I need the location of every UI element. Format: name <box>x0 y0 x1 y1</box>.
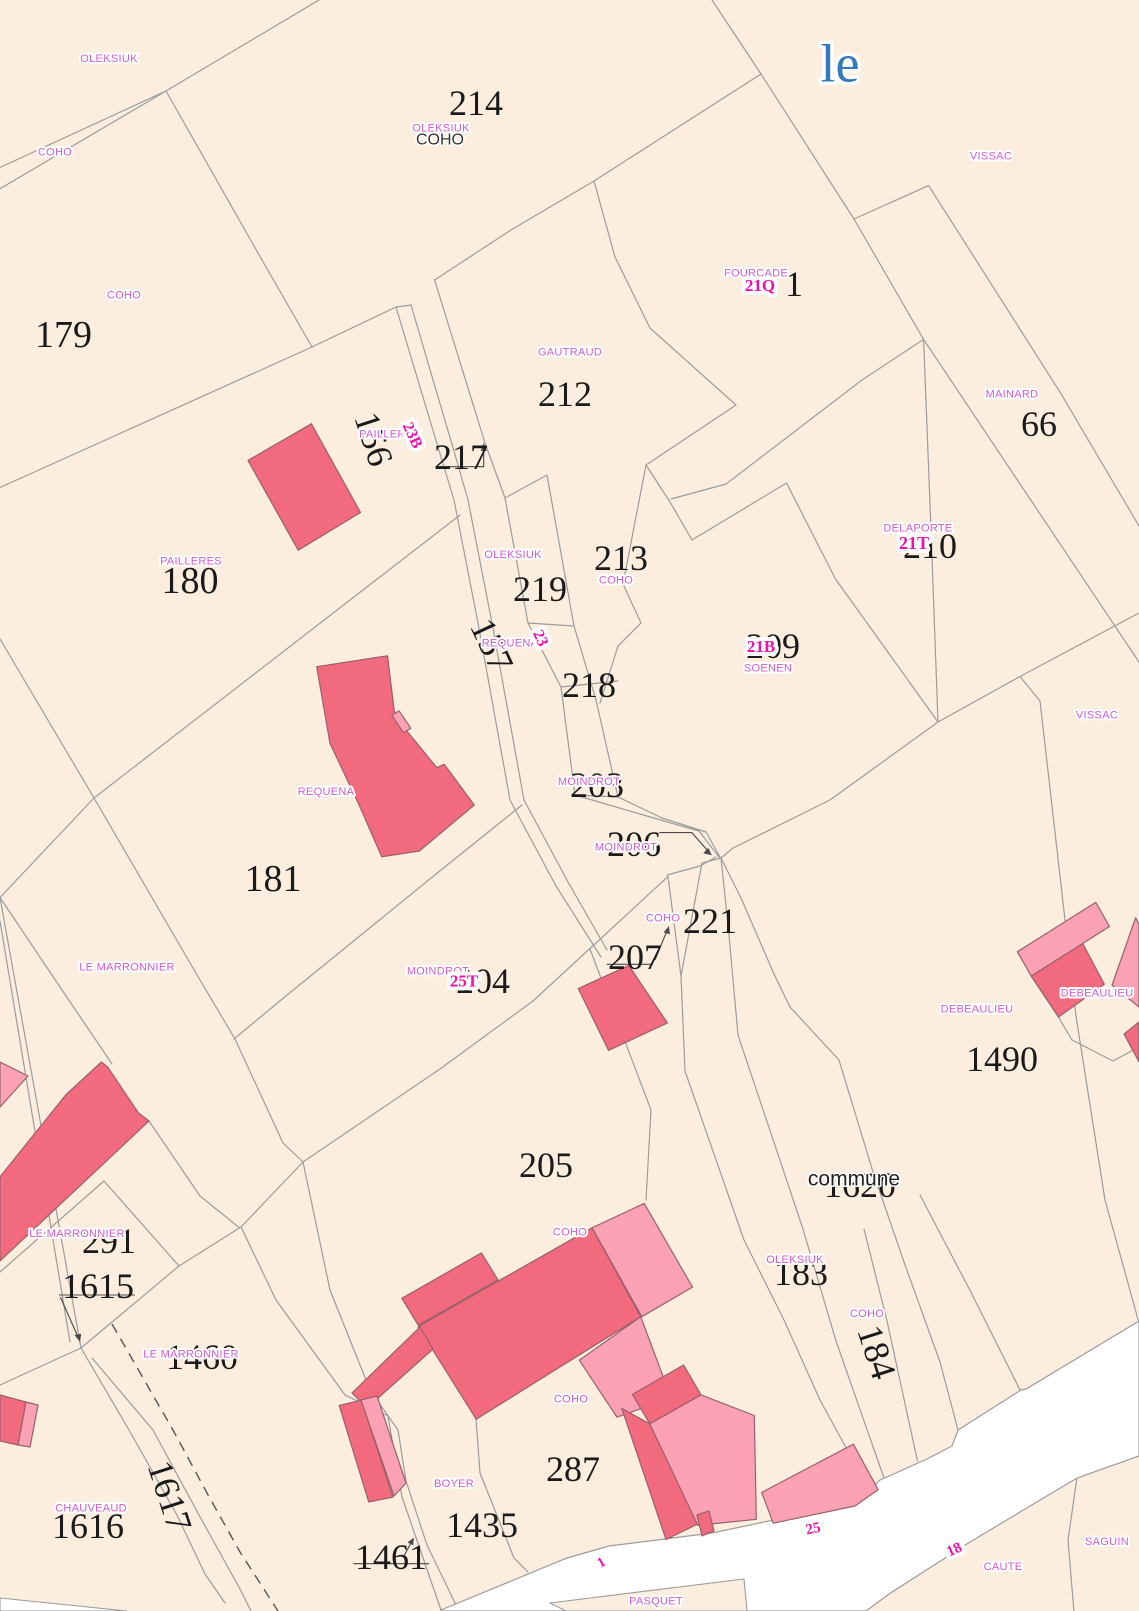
svg-text:291: 291 <box>82 1221 136 1261</box>
svg-text:181: 181 <box>245 858 302 900</box>
svg-text:VISSAC: VISSAC <box>1076 710 1118 722</box>
svg-text:le: le <box>821 33 860 93</box>
svg-text:GAUTRAUD: GAUTRAUD <box>538 347 602 359</box>
svg-text:CHAUVEAUD: CHAUVEAUD <box>55 1503 127 1515</box>
svg-text:COHO: COHO <box>416 131 464 148</box>
svg-text:1615: 1615 <box>62 1266 134 1306</box>
svg-text:207: 207 <box>608 937 662 977</box>
svg-text:PASQUET: PASQUET <box>629 1596 683 1608</box>
svg-text:VISSAC: VISSAC <box>970 151 1012 163</box>
svg-text:LE MARRONNIER: LE MARRONNIER <box>143 1349 239 1361</box>
svg-text:213: 213 <box>594 538 648 578</box>
svg-text:REQUENA: REQUENA <box>298 786 355 798</box>
svg-text:COHO: COHO <box>646 913 680 925</box>
svg-text:DEBEAULIEU: DEBEAULIEU <box>941 1004 1014 1016</box>
svg-text:BOYER: BOYER <box>434 1478 474 1490</box>
svg-text:21Q: 21Q <box>745 276 775 295</box>
svg-text:OLEKSIUK: OLEKSIUK <box>766 1254 824 1266</box>
svg-text:MAINARD: MAINARD <box>986 389 1039 401</box>
svg-text:CAUTE: CAUTE <box>984 1561 1023 1573</box>
svg-text:REQUENA: REQUENA <box>482 638 539 650</box>
svg-text:SOENEN: SOENEN <box>744 663 792 675</box>
svg-text:DEBEAULIEU: DEBEAULIEU <box>1061 988 1134 1000</box>
svg-text:COHO: COHO <box>554 1394 588 1406</box>
svg-text:COHO: COHO <box>38 146 72 158</box>
svg-text:OLEKSIUK: OLEKSIUK <box>484 549 542 561</box>
svg-text:218: 218 <box>562 665 616 705</box>
svg-text:1435: 1435 <box>446 1505 518 1545</box>
svg-text:MOINDROT: MOINDROT <box>595 842 657 854</box>
svg-text:PAILLERES: PAILLERES <box>160 556 222 568</box>
svg-text:219: 219 <box>513 569 567 609</box>
svg-text:COHO: COHO <box>553 1227 587 1239</box>
svg-text:25T: 25T <box>450 971 479 990</box>
svg-text:LE MARRONNIER: LE MARRONNIER <box>29 1228 125 1240</box>
svg-text:LE MARRONNIER: LE MARRONNIER <box>79 962 175 974</box>
svg-text:179: 179 <box>35 314 92 356</box>
svg-text:66: 66 <box>1021 404 1057 444</box>
svg-text:221: 221 <box>683 901 737 941</box>
svg-text:COHO: COHO <box>107 290 141 302</box>
svg-text:COHO: COHO <box>850 1308 884 1320</box>
svg-text:287: 287 <box>546 1449 600 1489</box>
svg-text:212: 212 <box>538 374 592 414</box>
svg-text:commune: commune <box>808 1168 900 1191</box>
svg-text:1490: 1490 <box>966 1039 1038 1079</box>
svg-text:21B: 21B <box>747 637 775 656</box>
svg-text:COHO: COHO <box>599 575 633 587</box>
svg-text:SAGUIN: SAGUIN <box>1085 1536 1129 1548</box>
svg-text:1461: 1461 <box>355 1537 427 1577</box>
svg-text:214: 214 <box>449 83 503 123</box>
svg-text:OLEKSIUK: OLEKSIUK <box>80 53 138 65</box>
svg-text:205: 205 <box>519 1145 573 1185</box>
svg-text:217: 217 <box>434 437 488 477</box>
svg-text:MOINDROT: MOINDROT <box>558 776 620 788</box>
svg-text:21T: 21T <box>899 533 929 553</box>
